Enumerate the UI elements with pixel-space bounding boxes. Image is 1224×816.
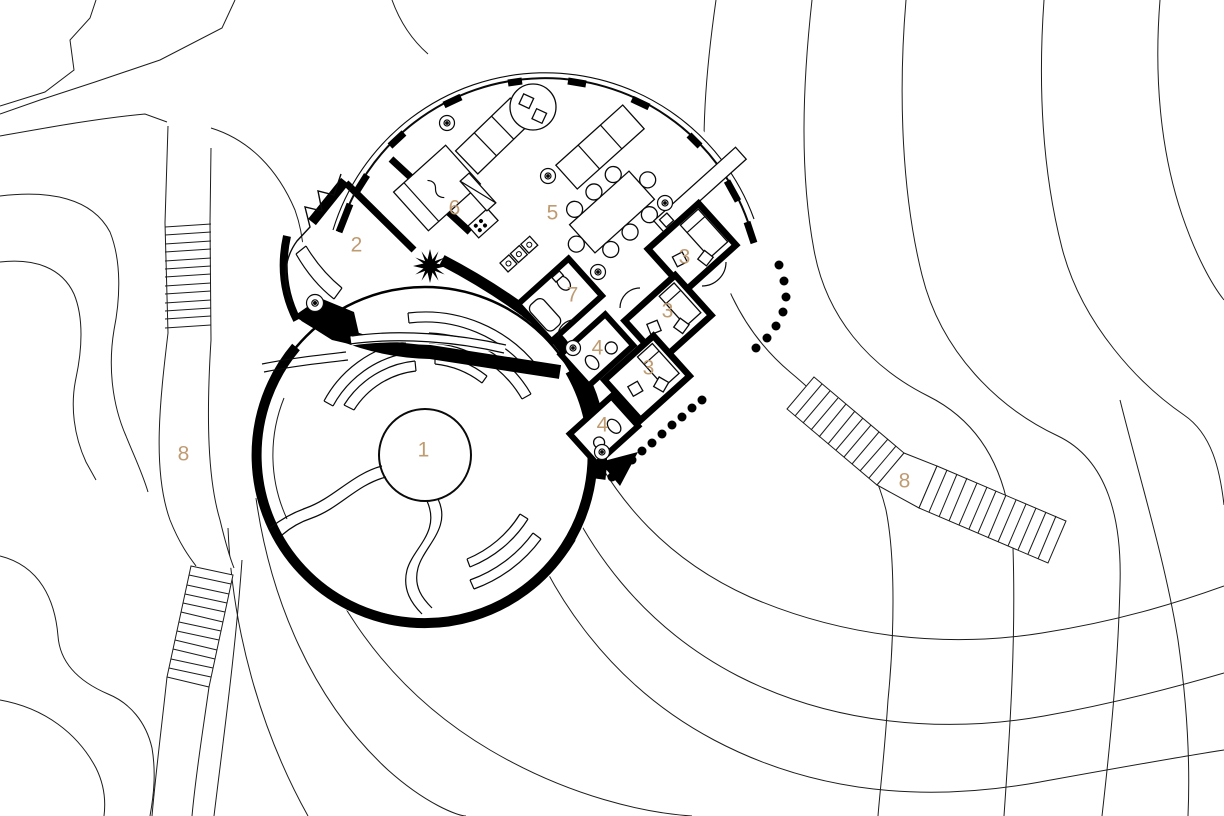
round-table	[510, 84, 556, 130]
stair-path-west	[159, 126, 234, 568]
room-label-entry: 2	[351, 235, 364, 256]
room-label-bedroom-main: 6	[449, 198, 462, 219]
room-label-bath-2: 4	[597, 415, 610, 436]
room-label-bath-1: 4	[592, 338, 605, 359]
column-dots-arc	[752, 261, 791, 353]
stair-southwest	[152, 566, 233, 816]
room-label-kitchen: 7	[567, 285, 580, 306]
path-label-west-stairs: 8	[178, 444, 191, 465]
room-label-bedroom-2: 3	[662, 301, 675, 322]
stair-east	[787, 377, 1066, 563]
room-label-bedroom-1: 3	[679, 247, 692, 268]
room-label-living: 5	[547, 203, 560, 224]
site-plan-drawing	[0, 0, 1224, 816]
site-plan-canvas: 1 2 5 6 7 3 3 3 4 4 8 8	[0, 0, 1224, 816]
room-label-courtyard: 1	[418, 440, 431, 461]
room-label-bedroom-3: 3	[643, 358, 656, 379]
path-label-east-stairs: 8	[899, 471, 912, 492]
